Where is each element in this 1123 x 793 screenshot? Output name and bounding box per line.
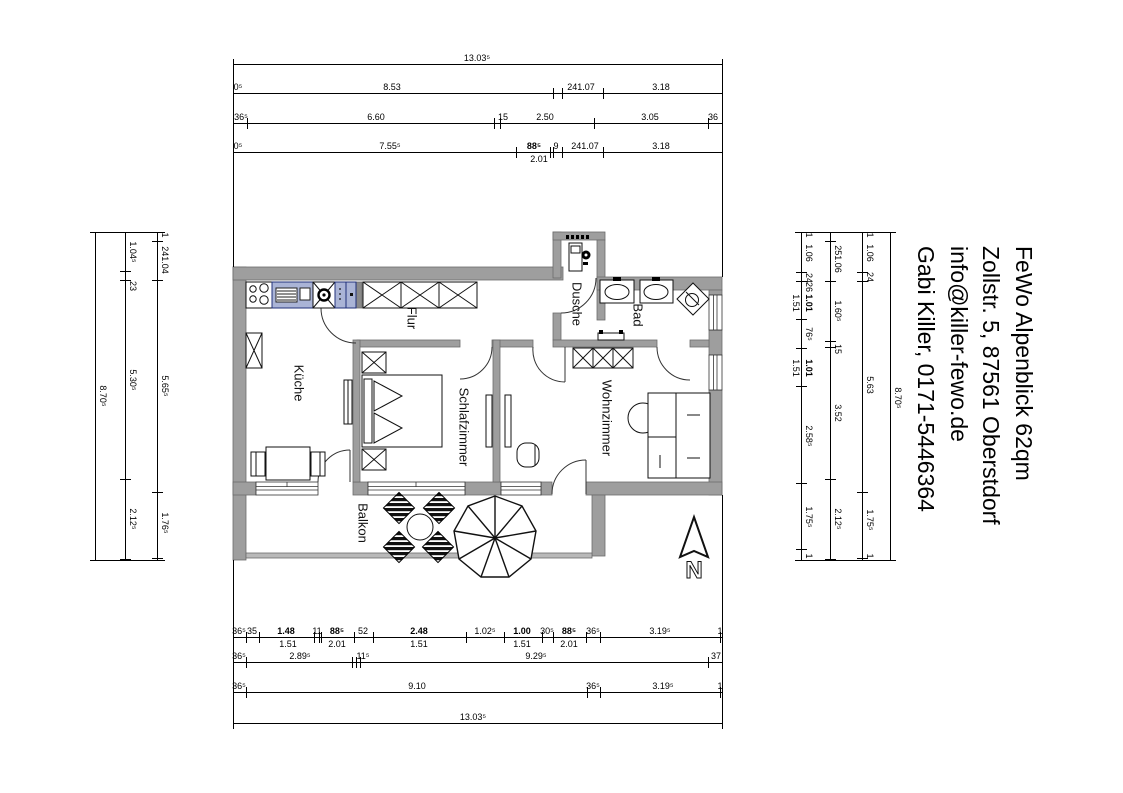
room-label-bad: Bad <box>631 303 646 326</box>
dim-label: 2.01 <box>560 639 578 649</box>
dim-tick <box>120 271 131 272</box>
dim-tick <box>708 657 709 668</box>
dim-tick <box>825 559 836 560</box>
dim-tick <box>796 348 807 349</box>
door-arc-wohnzimmer-balkon <box>552 460 586 494</box>
door-arc-bad <box>657 347 690 380</box>
chair-icon <box>311 452 325 476</box>
dim-label: 24 <box>865 272 875 282</box>
dim-tick <box>494 118 495 129</box>
dim-tick <box>354 632 355 643</box>
dim-tick <box>562 88 563 99</box>
wall-bottom-c <box>465 482 501 495</box>
contact-block: FeWo Alpenblick 62qm Zollstr. 5, 87561 O… <box>910 246 1040 580</box>
dim-label: 11⁵ <box>356 651 369 661</box>
dim-label: 1.04⁵ <box>128 241 138 262</box>
dim-tick <box>259 632 260 643</box>
dim-label: 0⁵ <box>234 141 243 151</box>
dim-tick <box>246 657 247 668</box>
dim-line <box>233 123 722 124</box>
dim-line <box>233 662 722 663</box>
dim-label: 1 <box>804 553 814 558</box>
contact-line-title: FeWo Alpenblick 62qm <box>1008 246 1041 580</box>
radiator-wohnzimmer <box>505 395 511 447</box>
basin-icon <box>517 443 539 467</box>
wall-right-a <box>709 290 722 295</box>
kitchen-table-icon <box>266 447 310 480</box>
dim-label: 35 <box>247 626 257 636</box>
window-schlafzimmer <box>368 482 465 495</box>
radiator-bad <box>598 330 624 340</box>
dim-label: 3.19⁵ <box>652 681 673 691</box>
dim-tick <box>825 341 836 342</box>
dim-label: 241.04 <box>160 246 170 274</box>
flur-wardrobes <box>363 282 477 308</box>
dim-line <box>890 232 891 560</box>
dim-label: 251.06 <box>833 245 843 273</box>
balkon-furniture <box>383 492 536 577</box>
dim-tick <box>152 280 163 281</box>
wall-bottom-b <box>353 482 368 495</box>
dim-label: 8.70⁵ <box>98 385 108 406</box>
wall-right-b <box>709 330 722 355</box>
wardrobe-icon <box>363 282 401 308</box>
wardrobe-icon <box>439 282 477 308</box>
dim-tick <box>594 118 595 129</box>
dim-line <box>722 64 723 277</box>
dim-label: 30⁵ <box>540 626 554 636</box>
north-letter: N <box>685 557 702 584</box>
umbrella-icon <box>454 496 536 577</box>
nightstand-icon <box>362 449 386 470</box>
dim-tick <box>825 241 836 242</box>
wall-counter-pier <box>356 282 362 308</box>
dim-label: 3.18 <box>652 141 670 151</box>
wall-bad-bottom-b <box>690 340 709 347</box>
dim-tick <box>553 88 554 99</box>
dim-tick <box>603 147 604 158</box>
stove-icon <box>246 282 272 308</box>
dim-label: 2.89⁵ <box>289 651 310 661</box>
room-label-flur: Flur <box>405 307 420 330</box>
dim-label: 3.05 <box>641 112 659 122</box>
dim-label: 1 <box>865 232 875 237</box>
dim-tick <box>352 657 353 668</box>
dim-label: 15 <box>833 344 843 354</box>
dim-line <box>233 64 234 267</box>
room-label-balkon: Balkon <box>356 503 371 543</box>
dim-tick <box>90 232 101 233</box>
dim-label: 8.70⁵ <box>893 387 903 408</box>
dim-tick <box>603 88 604 99</box>
patio-table-icon <box>407 514 433 540</box>
dim-line <box>233 560 234 723</box>
door-arc-kueche-flur <box>321 308 356 343</box>
kueche-furniture <box>246 333 352 480</box>
dim-label: 11 <box>312 626 321 636</box>
wardrobe-icon <box>573 348 593 368</box>
wall-bottom-a <box>233 482 256 495</box>
dim-line <box>233 692 722 693</box>
dim-label: 0⁵ <box>234 82 243 92</box>
dim-tick <box>152 558 163 559</box>
dim-label: 1.06 <box>865 244 875 262</box>
wall-top-left <box>233 267 563 280</box>
dim-tick <box>796 386 807 387</box>
dim-tick <box>600 687 601 698</box>
dim-line <box>722 495 723 723</box>
dim-label: 1.06 <box>804 244 814 262</box>
wall-left <box>233 267 246 560</box>
contact-line-email: info@killer-fewo.de <box>943 246 976 580</box>
dim-label: 1.51 <box>791 359 801 377</box>
dim-tick <box>600 632 601 643</box>
dim-label: 13.03⁵ <box>464 53 490 63</box>
dishwasher-icon <box>272 282 313 308</box>
wall-kueche-schlaf-divider <box>353 340 360 482</box>
dim-line <box>795 560 895 561</box>
balcony-rail <box>246 553 592 558</box>
dim-label: 88⁵ <box>562 626 576 636</box>
dim-line <box>233 64 722 65</box>
dim-label: 52 <box>358 626 368 636</box>
dim-tick <box>90 560 101 561</box>
dim-label: 88⁵ <box>330 626 344 636</box>
dim-tick <box>373 632 374 643</box>
dim-label: 1.51 <box>410 639 428 649</box>
dim-line <box>90 560 165 561</box>
nightstand-icon <box>362 352 386 373</box>
dim-label: 1.00 <box>513 626 531 636</box>
dim-label: 1.48 <box>277 626 295 636</box>
dim-line <box>233 93 722 94</box>
dim-label: 15 <box>498 112 508 122</box>
dim-tick <box>825 281 836 282</box>
dim-line <box>233 152 722 153</box>
dim-label: 1.76⁵ <box>160 512 170 533</box>
dim-label: 36⁵ <box>232 651 246 661</box>
dim-label: 26 <box>804 282 814 292</box>
dim-label: 36⁵ <box>232 681 246 691</box>
dim-label: 1.51 <box>279 639 297 649</box>
dim-label: 5.65⁵ <box>160 375 170 396</box>
dim-tick <box>120 232 131 233</box>
dim-label: 2.01 <box>328 639 346 649</box>
dim-tick <box>825 479 836 480</box>
dim-label: 2.12⁵ <box>833 508 843 529</box>
dim-label: 7.55⁵ <box>379 141 400 151</box>
dim-tick <box>562 147 563 158</box>
door-arc-schlafzimmer <box>460 347 492 379</box>
dim-label: 1.01 <box>804 294 814 312</box>
dim-label: 2.01 <box>530 154 548 164</box>
dim-tick <box>796 560 807 561</box>
dim-tick <box>120 559 131 560</box>
wall-balcony-right <box>592 495 605 556</box>
dim-tick <box>246 687 247 698</box>
chair-icon <box>251 452 265 476</box>
dim-label: 3.19⁵ <box>649 626 670 636</box>
dim-label: 2.12⁵ <box>128 508 138 529</box>
window-bad-right <box>709 295 722 330</box>
wall-dusche-left-stub <box>553 313 561 340</box>
dim-label: 5.30⁵ <box>128 369 138 390</box>
floorplan-sheet: N Küche Flur Schlafzimmer Dusche Bad Woh… <box>0 0 1123 793</box>
sink-icon <box>313 282 335 308</box>
wall-bottom-d <box>541 482 552 495</box>
cabinet-units-icon <box>335 282 356 308</box>
dim-label: 1.60⁵ <box>833 300 843 321</box>
dim-tick <box>516 147 517 158</box>
dim-tick <box>857 492 868 493</box>
north-arrow-icon: N <box>680 517 708 584</box>
dim-label: 36⁵ <box>234 112 248 122</box>
dim-label: 1.01 <box>804 359 814 377</box>
dim-tick <box>466 632 467 643</box>
dim-label: 1 <box>865 553 875 558</box>
dim-label: 1.75⁵ <box>865 509 875 530</box>
dim-label: 5.63 <box>865 376 875 394</box>
dim-tick <box>120 479 131 480</box>
dim-label: 36 <box>708 112 718 122</box>
dim-label: 1.51 <box>791 294 801 312</box>
dim-tick <box>550 147 551 158</box>
door-arc-wohnzimmer <box>533 347 565 382</box>
wardrobe-icon <box>613 348 633 368</box>
wall-bottom-e <box>586 482 722 495</box>
dim-label: 1 <box>804 232 814 237</box>
dim-tick <box>152 241 163 242</box>
dim-label: 36⁵ <box>232 626 246 636</box>
dim-tick <box>796 483 807 484</box>
bed-icon <box>362 375 442 447</box>
dim-tick <box>796 549 807 550</box>
dim-label: 36⁵ <box>586 626 600 636</box>
wall-right-c <box>709 390 722 495</box>
dim-label: 1.75⁵ <box>804 506 814 527</box>
wall-bad-bottom <box>553 340 657 347</box>
dim-label: 2.48 <box>410 626 428 636</box>
dim-label: 2.50 <box>536 112 554 122</box>
dim-label: 23 <box>128 281 138 291</box>
room-label-dusche: Dusche <box>570 282 585 326</box>
window-wohnzimmer-bottom <box>501 482 541 495</box>
dim-line <box>233 637 722 638</box>
wardrobe-icon <box>593 348 613 368</box>
contact-line-address: Zollstr. 5, 87561 Oberstdorf <box>975 246 1008 580</box>
dim-tick <box>152 492 163 493</box>
room-label-kueche: Küche <box>292 365 307 402</box>
wall-flur-schlaf <box>357 340 460 347</box>
dim-label: 241.07 <box>567 82 595 92</box>
dim-tick <box>504 632 505 643</box>
dim-label: 1.02⁵ <box>474 626 495 636</box>
dim-line <box>233 723 722 724</box>
radiator-schlafzimmer <box>486 395 492 447</box>
sofa-icon <box>648 393 710 478</box>
contact-line-phone: Gabi Killer, 0171-5446364 <box>910 246 943 580</box>
dim-line <box>125 232 126 560</box>
dim-label: 241.07 <box>571 141 599 151</box>
dim-label: 8.53 <box>383 82 401 92</box>
dim-label: 13.03⁵ <box>460 712 486 722</box>
dim-label: 37 <box>711 651 721 661</box>
dim-line <box>157 232 158 560</box>
dim-tick <box>796 319 807 320</box>
dim-label: 6.60 <box>367 112 385 122</box>
dim-label: 3.18 <box>652 82 670 92</box>
room-label-schlafzimmer: Schlafzimmer <box>457 388 472 467</box>
wardrobe-icon <box>401 282 439 308</box>
washbasin-icon <box>640 277 673 303</box>
dim-tick <box>885 232 896 233</box>
dim-label: 36⁵ <box>586 681 600 691</box>
dim-tick <box>885 560 896 561</box>
dim-line <box>95 232 96 560</box>
schlafzimmer-furniture <box>362 352 492 470</box>
kitchen-counter <box>246 282 356 308</box>
dim-label: 2.58⁵ <box>804 425 814 446</box>
dim-label: 1 <box>160 232 170 237</box>
dim-label: 88⁵ <box>527 141 541 151</box>
dim-label: 9.10 <box>408 681 426 691</box>
dim-label: 9 <box>553 141 558 151</box>
dim-label: 9.29⁵ <box>525 651 546 661</box>
room-label-wohnzimmer: Wohnzimmer <box>600 380 615 457</box>
wall-schlaf-wohn-divider <box>493 340 500 482</box>
dim-tick <box>825 232 836 233</box>
window-wohnzimmer-right <box>709 355 722 390</box>
dim-label: 3.52 <box>833 404 843 422</box>
window-kueche <box>256 482 318 495</box>
dim-label: 1.51 <box>513 639 531 649</box>
washbasin-icon <box>600 277 634 303</box>
kitchen-cabinet-icon <box>246 333 262 368</box>
dim-label: 76⁵ <box>804 327 814 341</box>
